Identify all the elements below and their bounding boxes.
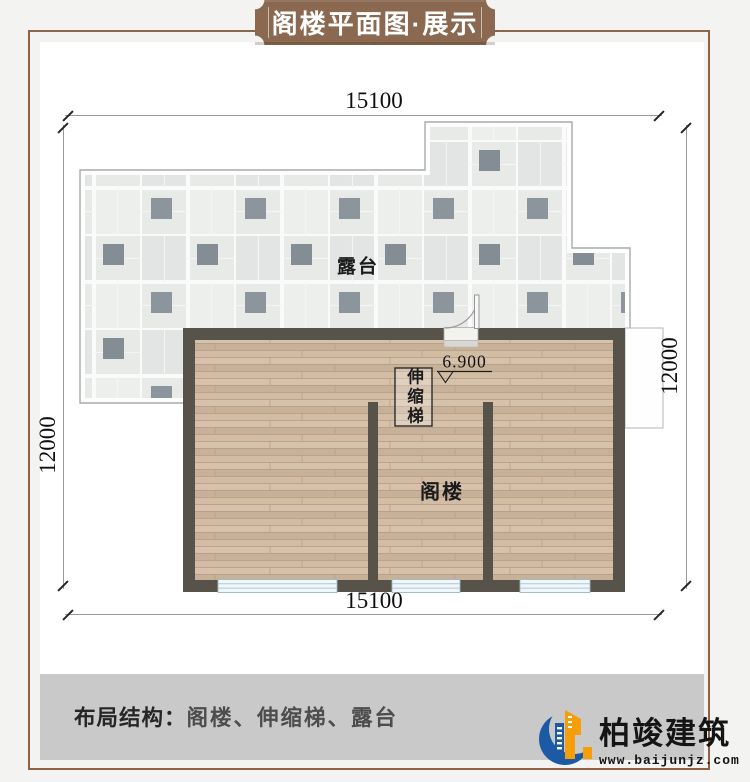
banner-side-line-left [30, 30, 252, 32]
logo-name: 柏竣建筑 [599, 708, 740, 753]
company-logo: 柏竣建筑 www.baijunjz.com [533, 698, 745, 770]
ladder-label: 伸缩梯 [402, 368, 426, 427]
logo-building-icon [535, 702, 599, 770]
logo-url: www.baijunjz.com [599, 753, 740, 768]
page-title: 阁楼平面图·展示 [255, 0, 495, 45]
dim-left-value: 12000 [35, 416, 61, 474]
structure-label: 布局结构： [74, 706, 187, 730]
dim-right-value: 12000 [657, 337, 683, 395]
attic-label: 阁楼 [420, 476, 464, 505]
floor-plan-drawing [0, 0, 750, 782]
title-banner: 阁楼平面图·展示 [255, 0, 495, 45]
banner-side-line-right [498, 30, 708, 32]
terrace-label: 露台 [337, 252, 379, 279]
level-value: 6.900 [442, 352, 486, 373]
dim-top-value: 15100 [345, 88, 403, 114]
windows [218, 580, 590, 593]
dim-bottom-value: 15100 [345, 588, 403, 614]
layout-structure: 布局结构：阁楼、伸缩梯、露台 [74, 701, 398, 732]
structure-value: 阁楼、伸缩梯、露台 [187, 706, 399, 730]
